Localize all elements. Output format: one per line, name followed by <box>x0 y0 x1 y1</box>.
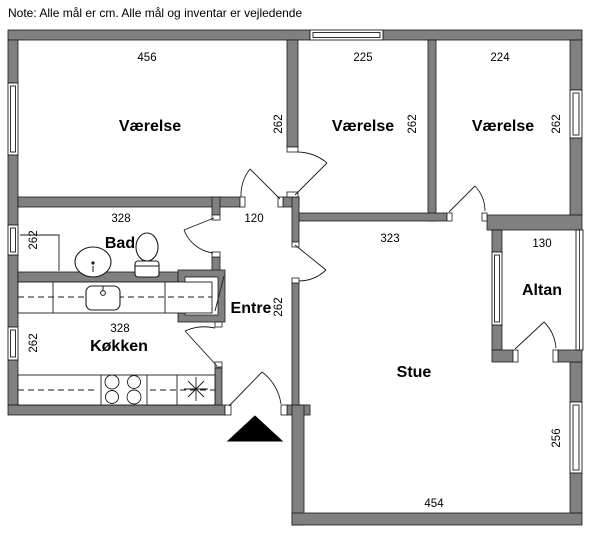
window-room1-left <box>8 83 18 155</box>
note-text: Note: Alle mål er cm. Alle mål og invent… <box>8 6 302 20</box>
dim-room1-depth: 262 <box>273 114 285 133</box>
dim-room3-depth: 262 <box>551 114 563 133</box>
window-bad-left <box>8 225 18 255</box>
dim-bad-depth: 262 <box>28 230 40 249</box>
dim-koekken-width: 328 <box>110 323 129 335</box>
dim-altan-width: 130 <box>532 238 551 250</box>
dim-stue-top-width: 323 <box>380 233 399 245</box>
dim-stue-depth: 256 <box>551 428 563 447</box>
altan-railing <box>576 230 583 350</box>
room-label-koekken: Køkken <box>90 338 148 355</box>
dim-room3-width: 224 <box>490 52 510 64</box>
kitchen-sink <box>86 286 120 310</box>
dim-bad-width: 328 <box>111 213 130 225</box>
toilet <box>135 233 159 277</box>
kitchen-counter-bottom <box>18 375 215 405</box>
window-stue-right <box>570 402 582 473</box>
room-label-bad: Bad <box>105 235 135 252</box>
room-label-vaerelse3: Værelse <box>472 118 534 135</box>
dim-entre-depth: 262 <box>273 297 285 316</box>
dim-stue-bottom-width: 454 <box>424 498 444 510</box>
room-label-stue: Stue <box>397 364 432 381</box>
window-room3-right <box>570 90 582 138</box>
dim-koekken-depth: 262 <box>28 333 40 352</box>
dim-room1-width: 456 <box>137 52 156 64</box>
room-label-entre: Entre <box>231 300 272 317</box>
room-label-vaerelse1: Værelse <box>119 118 181 135</box>
dim-hall-width: 120 <box>244 213 263 225</box>
window-koekken-left <box>8 327 18 360</box>
dim-room2-depth: 262 <box>407 114 419 133</box>
room-label-altan: Altan <box>522 282 562 299</box>
window-altan-left <box>492 252 502 325</box>
room-label-vaerelse2: Værelse <box>332 118 394 135</box>
window-room2-top <box>310 30 383 40</box>
floor-plan-page: Note: Alle mål er cm. Alle mål og invent… <box>0 0 600 536</box>
dim-room2-width: 225 <box>353 52 372 64</box>
floor-plan-svg: Note: Alle mål er cm. Alle mål og invent… <box>0 0 600 536</box>
